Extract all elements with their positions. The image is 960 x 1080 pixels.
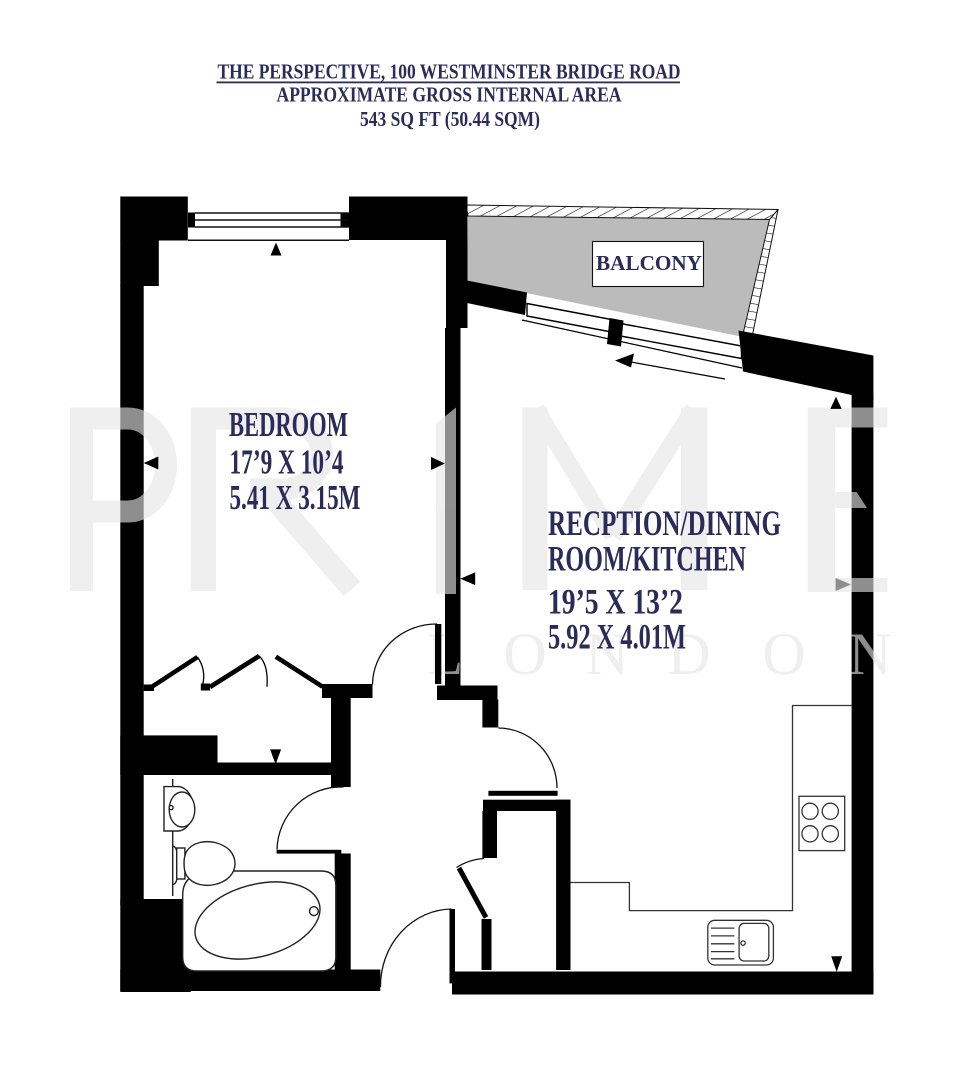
svg-text:BALCONY: BALCONY	[596, 251, 702, 275]
svg-text:5.92 X 4.01M: 5.92 X 4.01M	[548, 617, 686, 657]
svg-text:O: O	[762, 621, 805, 687]
svg-text:543 SQ FT (50.44 SQM): 543 SQ FT (50.44 SQM)	[360, 107, 540, 131]
svg-text:APPROXIMATE GROSS INTERNAL ARE: APPROXIMATE GROSS INTERNAL AREA	[277, 83, 623, 107]
svg-text:THE PERSPECTIVE, 100 WESTMINST: THE PERSPECTIVE, 100 WESTMINSTER BRIDGE …	[218, 60, 681, 84]
svg-text:L: L	[427, 621, 464, 687]
svg-text:O: O	[503, 621, 546, 687]
svg-text:5.41 X 3.15M: 5.41 X 3.15M	[230, 478, 361, 517]
svg-text:17’9 X 10’4: 17’9 X 10’4	[230, 442, 344, 481]
svg-text:ROOM/KITCHEN: ROOM/KITCHEN	[548, 539, 746, 579]
svg-text:19’5 X 13’2: 19’5 X 13’2	[548, 581, 683, 621]
svg-text:N: N	[848, 621, 891, 687]
svg-text:BEDROOM: BEDROOM	[229, 405, 348, 444]
svg-text:RECPTION/DINING: RECPTION/DINING	[548, 503, 781, 543]
